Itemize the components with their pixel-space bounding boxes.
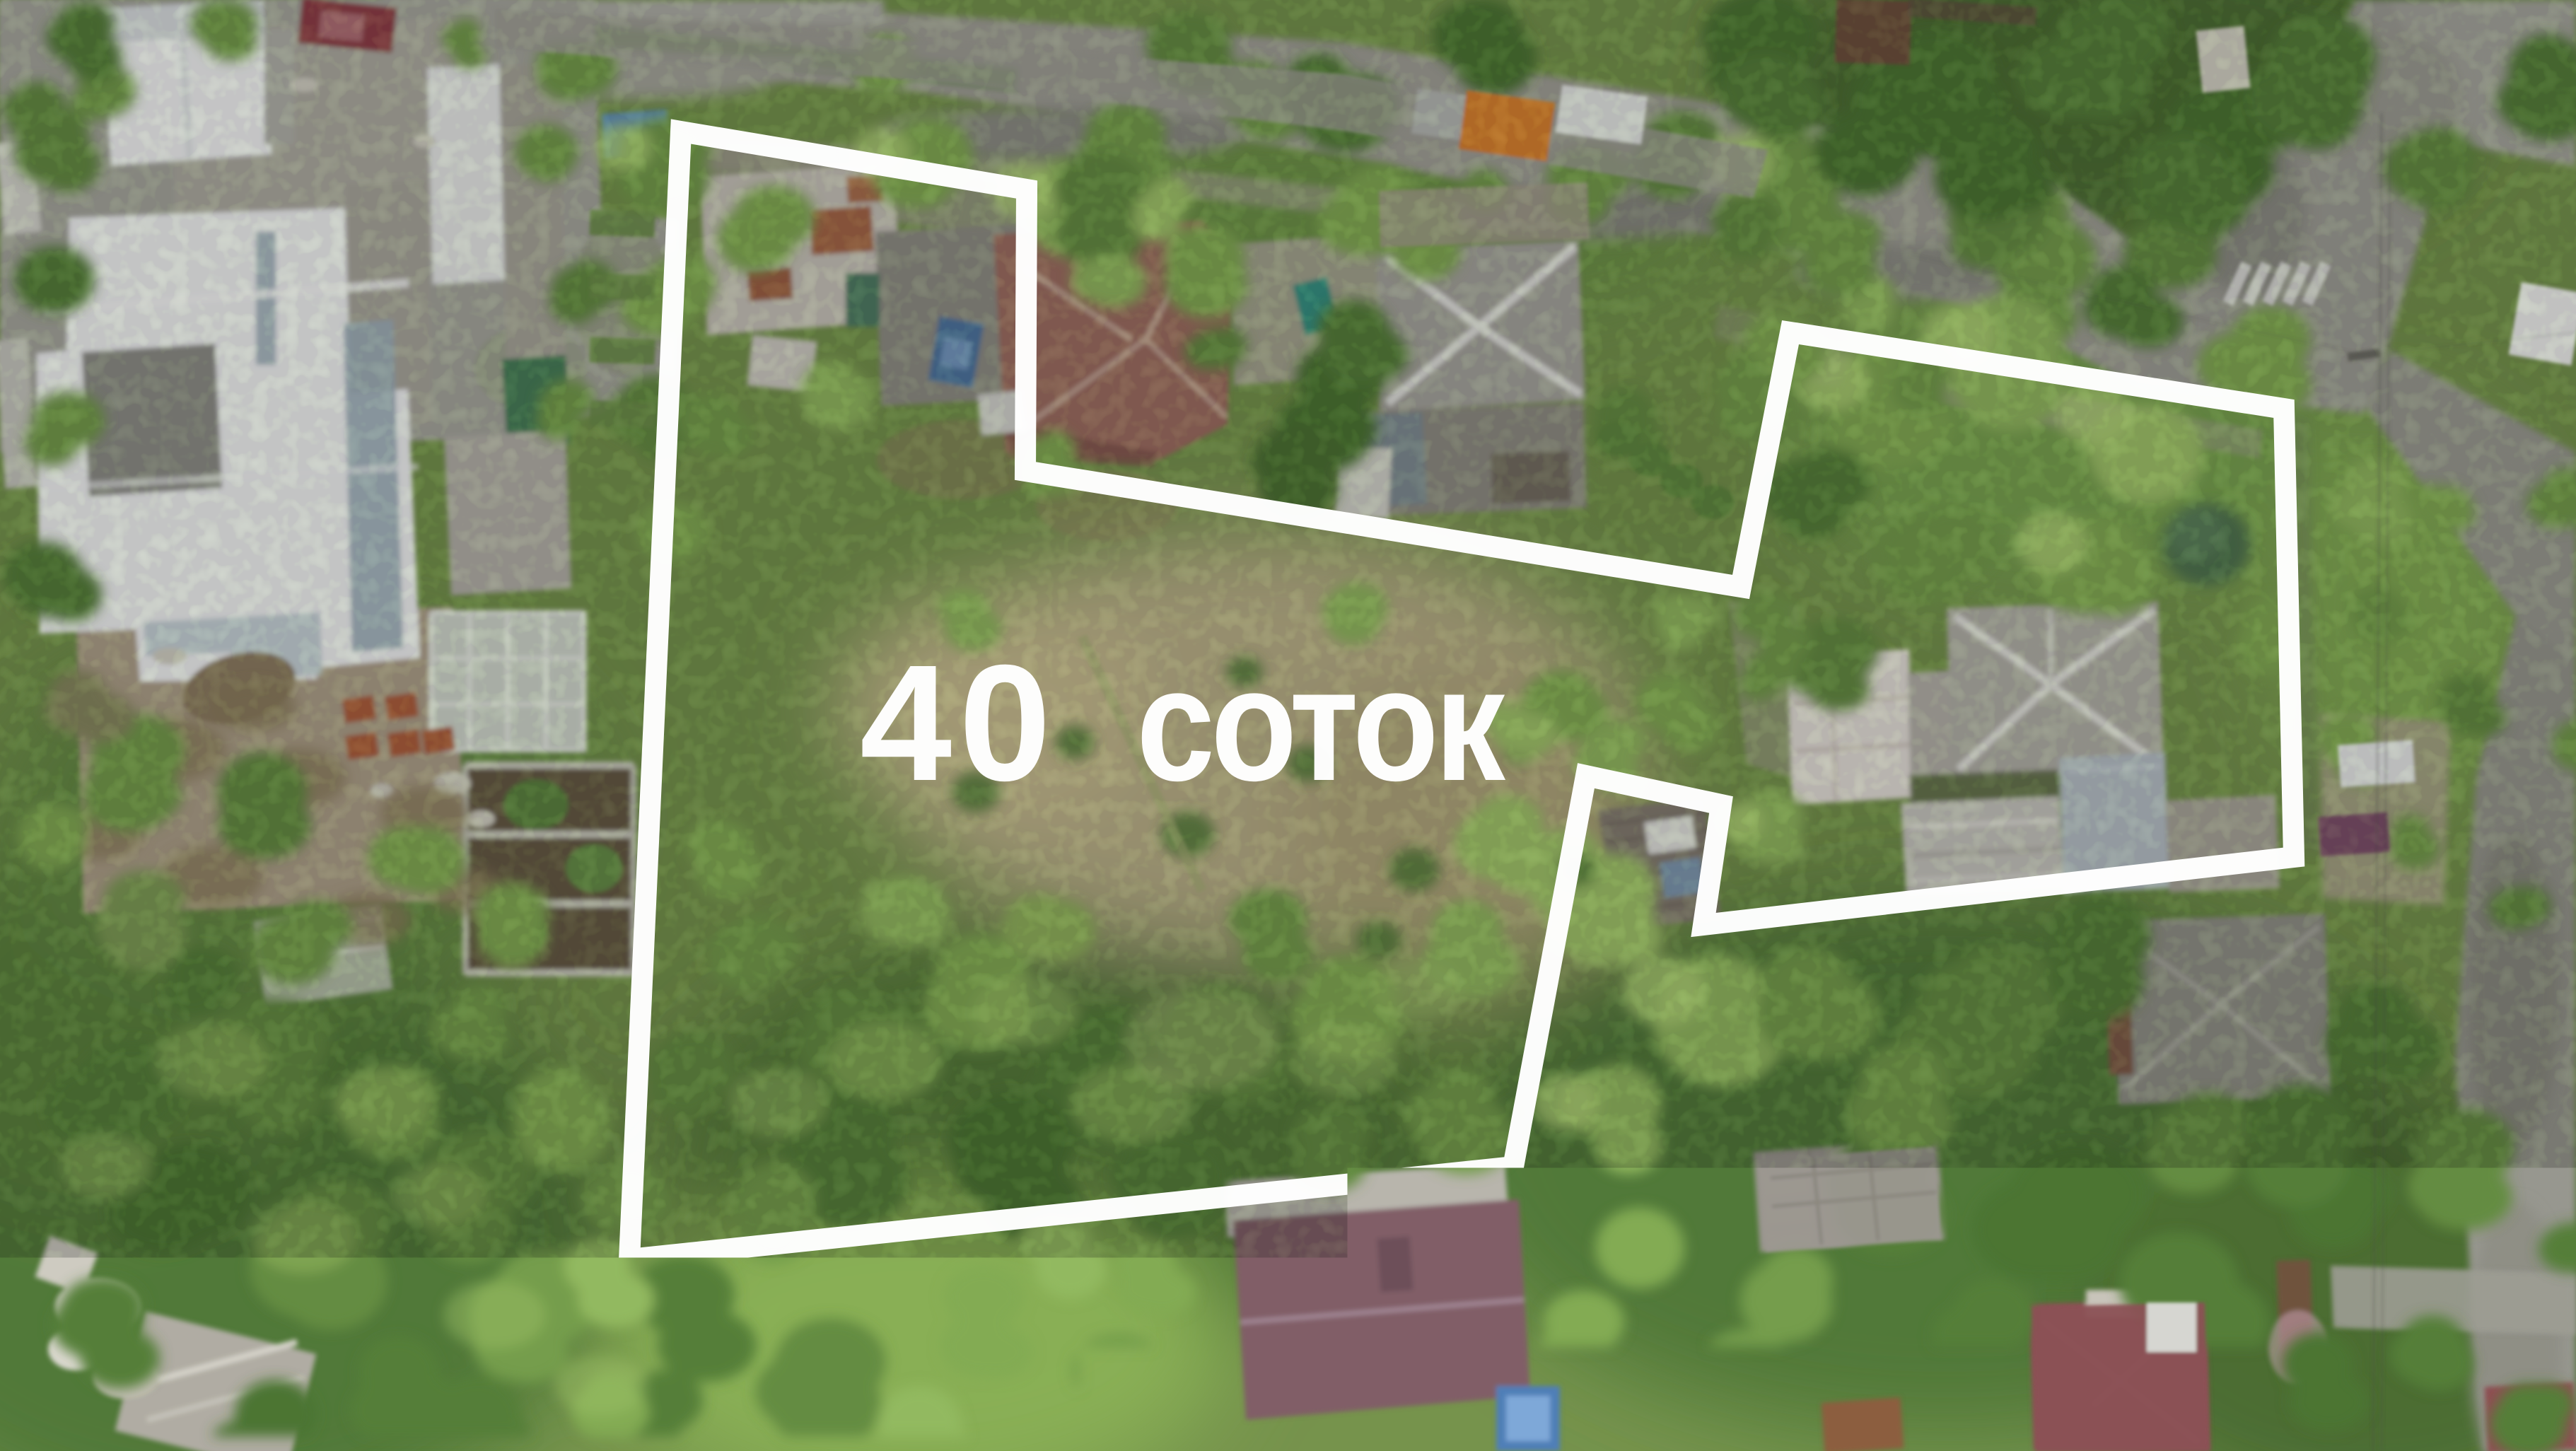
svg-text:соток: соток [1136, 635, 1506, 815]
svg-text:40: 40 [860, 630, 1058, 815]
